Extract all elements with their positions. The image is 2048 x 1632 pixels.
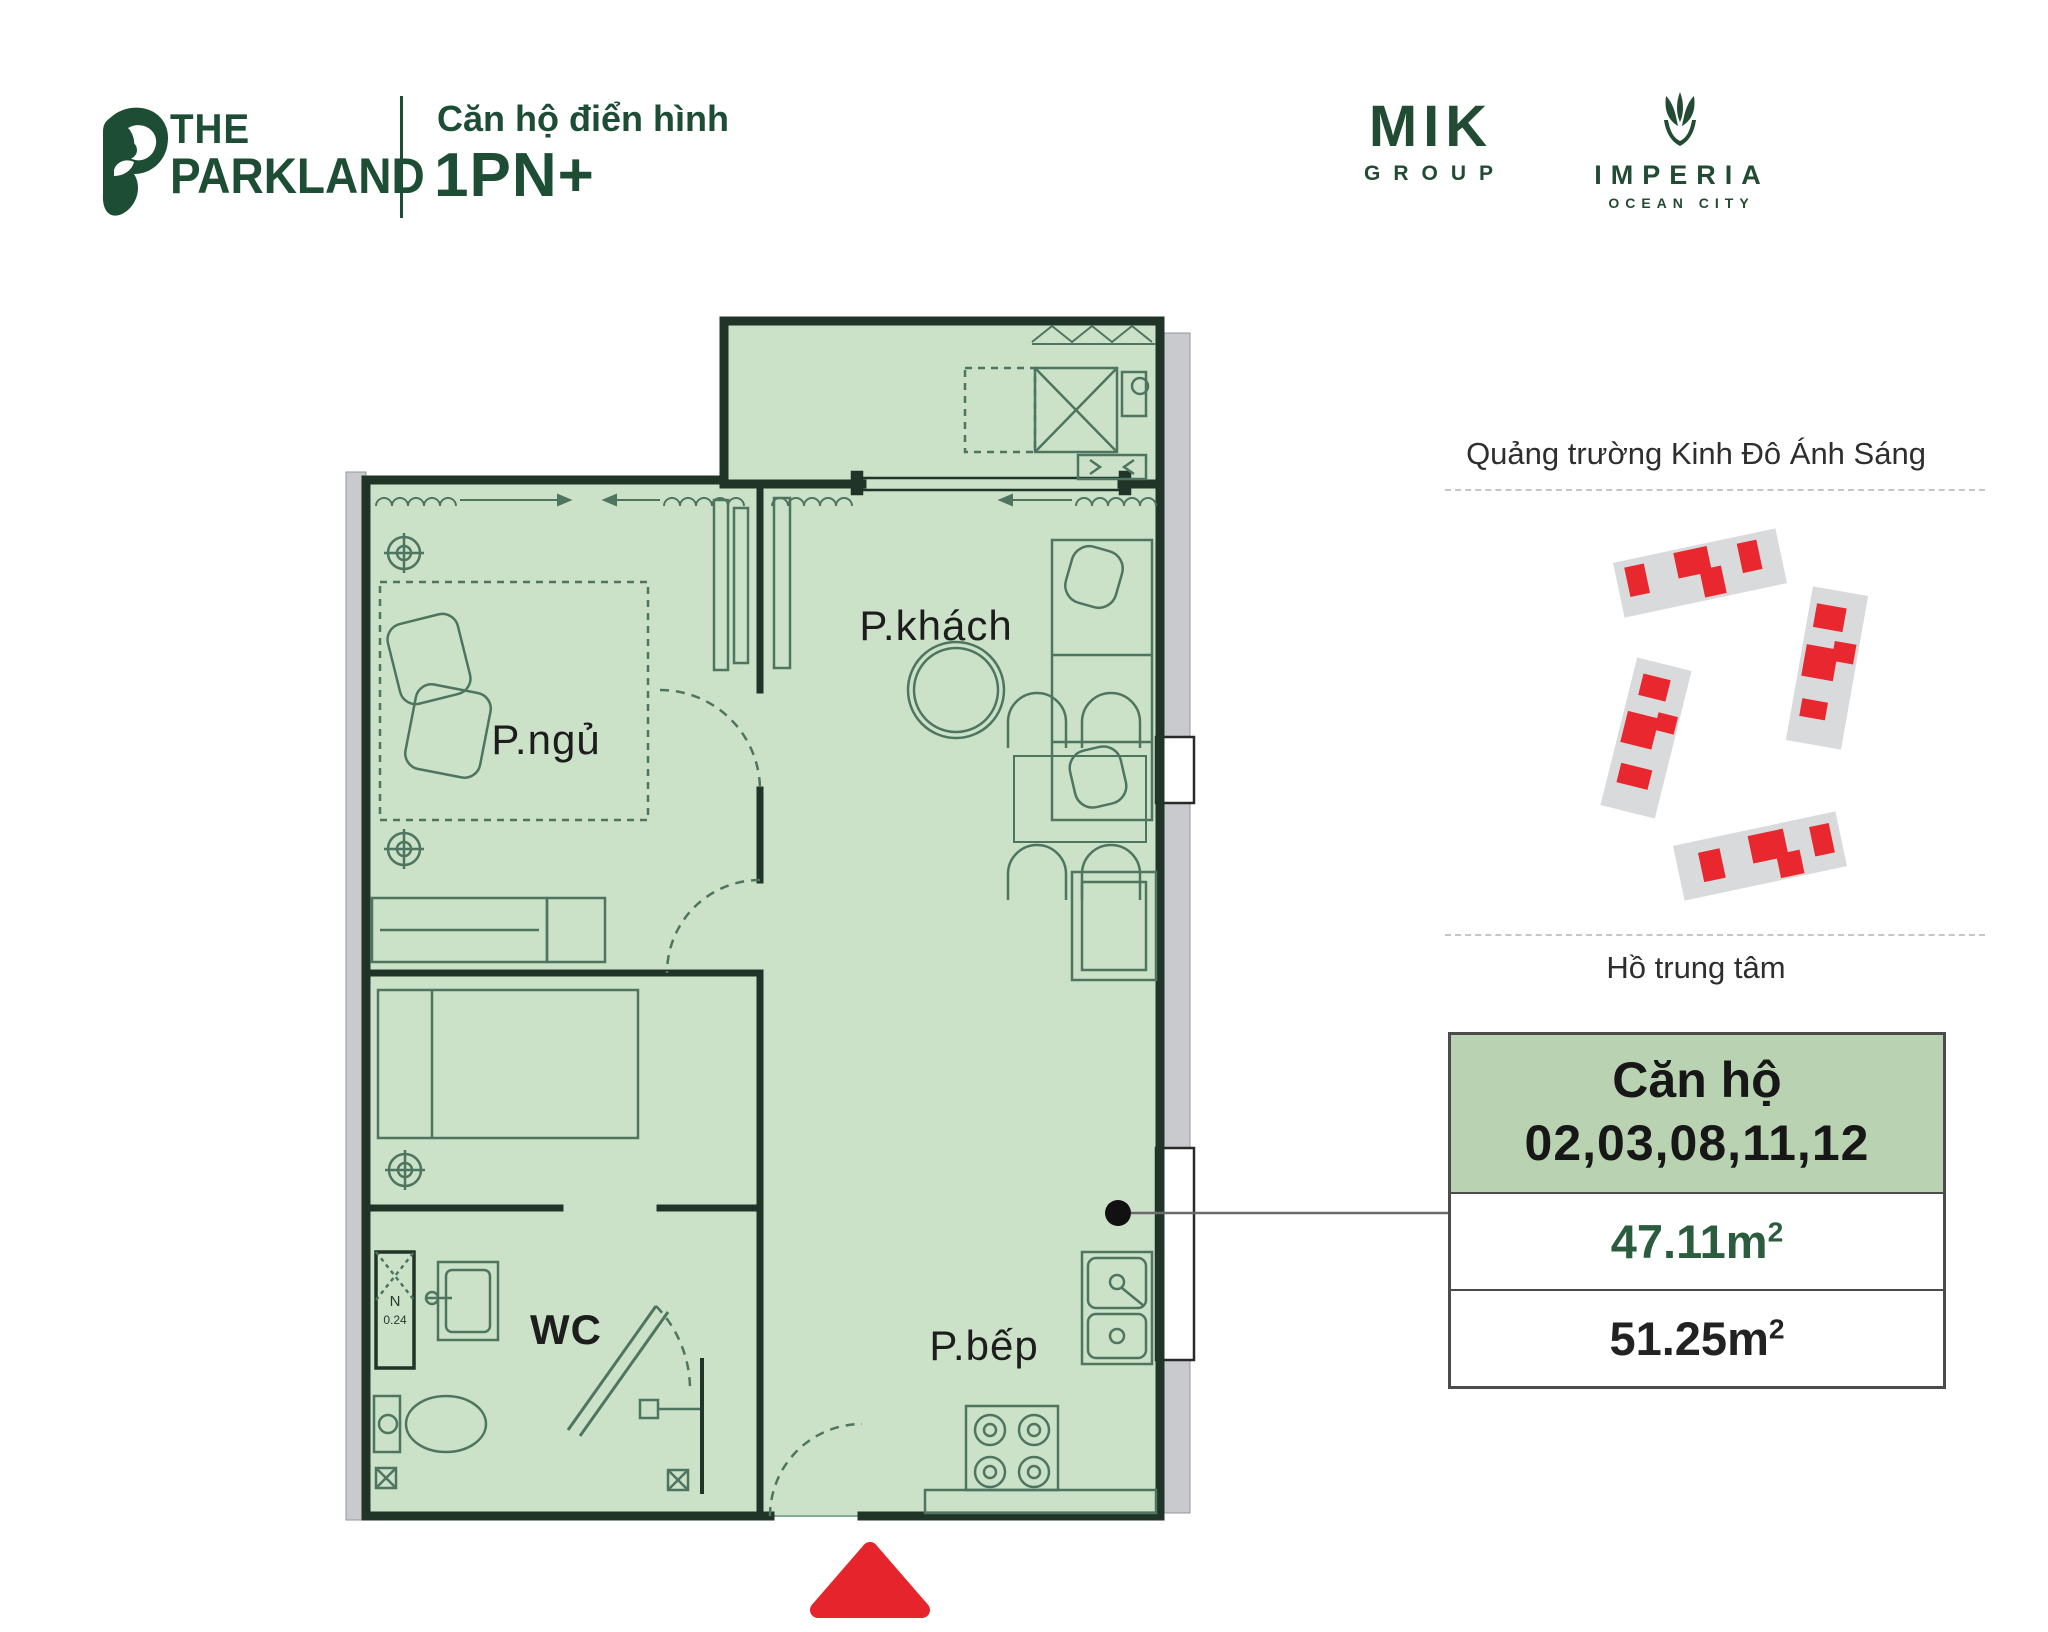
shaft-value: 0.24 [383, 1313, 407, 1327]
site-building-bottom [1673, 811, 1847, 900]
site-building-left [1600, 657, 1691, 818]
shaft-label: N [390, 1293, 401, 1310]
room-label-kitchen: P.bếp [929, 1322, 1038, 1369]
brochure-page: THE PARKLAND Căn hộ điển hình 1PN+ MIK G… [0, 0, 2048, 1632]
site-building-right [1786, 586, 1868, 749]
site-building-top [1613, 528, 1787, 617]
unit-marker-dot [1105, 1200, 1131, 1226]
room-label-bedroom: P.ngủ [491, 716, 600, 763]
site-key-plan [1600, 528, 1868, 900]
entry-arrow-icon [818, 1550, 922, 1610]
room-label-living: P.khách [859, 602, 1012, 649]
floor-plan-drawing: P.ngủ P.khách WC P.bếp N 0.24 [0, 0, 2048, 1632]
room-label-wc: WC [530, 1306, 602, 1353]
